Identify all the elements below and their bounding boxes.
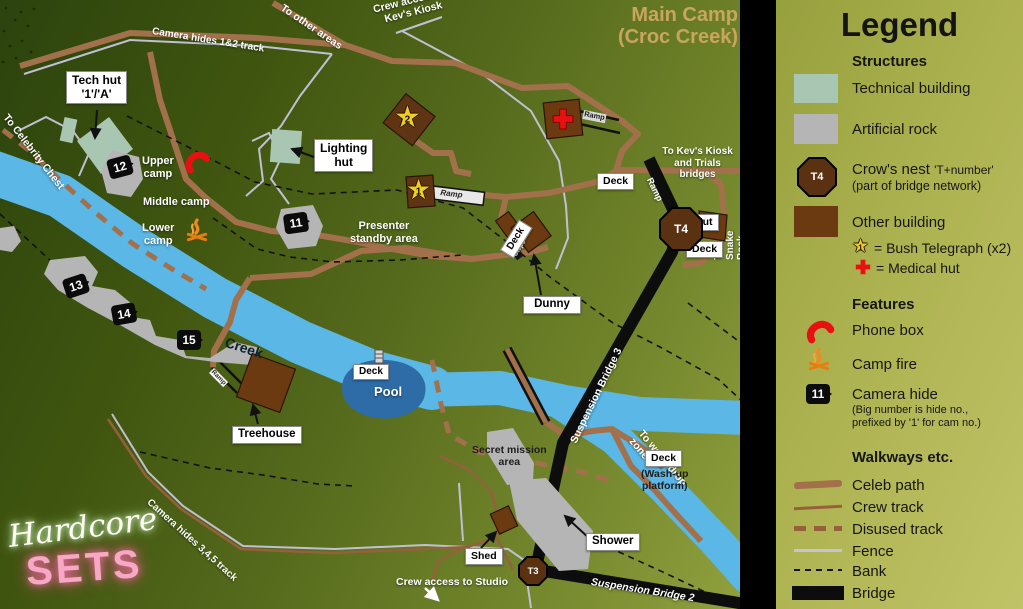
bush-telegraph-number: 1 <box>858 244 862 253</box>
dunny-arrow <box>534 255 541 295</box>
studio-access-arrow <box>425 588 438 600</box>
camera-hide-14: 14 <box>110 302 137 326</box>
legend-crows-nest-icon: T4 <box>797 157 837 197</box>
camera-hide-11: 11 <box>283 211 310 234</box>
legend-crows-nest-note: (part of bridge network) <box>852 179 981 193</box>
annotation-lower-camp: Lower camp <box>142 222 174 247</box>
disused-track-swatch <box>794 526 842 531</box>
annotation-presenter-standby: Presenter standby area <box>350 220 418 245</box>
camera-hide-number: 11 <box>289 215 304 231</box>
annotation-washup-platform: (Wash-up platform) <box>641 468 688 492</box>
annotation-middle-camp: Middle camp <box>143 196 210 209</box>
legend-camera-hide-icon: 11 <box>806 384 830 404</box>
legend-features-heading: Features <box>852 296 915 313</box>
camera-hide-15: 15 <box>177 330 201 350</box>
annotation-upper-camp: Upper camp <box>142 155 174 180</box>
legend-bank: Bank <box>852 563 886 580</box>
label-shower: Shower <box>586 533 640 551</box>
legend-celeb-path: Celeb path <box>852 477 925 494</box>
legend-artificial-rock: Artificial rock <box>852 121 937 138</box>
camera-hide-icon: 14 <box>110 302 137 326</box>
legend-medical-hut: = Medical hut <box>876 260 960 276</box>
other-building-swatch <box>794 206 838 237</box>
crows-nest-suffix: 'T+number' <box>934 163 994 177</box>
legend-crows-nest: Crow's nest 'T+number' <box>852 161 994 178</box>
legend-camp-fire: Camp fire <box>852 356 917 373</box>
legend-panel: Legend Structures Technical building Art… <box>776 0 1023 609</box>
annotation-secret-mission: Secret mission area <box>472 444 547 468</box>
bush-telegraph-number: 1 <box>416 187 422 198</box>
crows-nest-t3: T3 <box>518 556 548 586</box>
map-title-line1: Main Camp <box>598 4 738 26</box>
crew-track-swatch <box>794 505 842 511</box>
crows-nest-t4: T4 <box>659 207 703 251</box>
map-title: Main Camp (Croc Creek) <box>598 4 738 48</box>
legend-camera-hide: Camera hide <box>852 386 938 403</box>
logo-block: SETS <box>25 542 144 595</box>
shower-rock <box>509 478 593 571</box>
map-panel: Main Camp (Croc Creek) Camera hides 1&2 … <box>0 0 740 609</box>
technical-building-swatch <box>794 74 838 103</box>
stipple-dots <box>2 7 36 64</box>
annotation-pool: Pool <box>374 385 402 400</box>
label-dunny: Dunny <box>523 296 581 314</box>
legend-medical-icon <box>855 259 871 280</box>
legend-bridge: Bridge <box>852 585 895 602</box>
annotation-to-kevs-kiosk: To Kev's Kiosk and Trials bridges <box>655 146 740 181</box>
camera-hide-number: 11 <box>812 387 825 401</box>
artificial-rock-swatch <box>794 114 838 144</box>
treehouse-arrow <box>253 405 258 424</box>
legend-fire-icon <box>807 347 831 378</box>
label-shed: Shed <box>465 548 503 565</box>
crows-nest-label: Crow's nest <box>852 161 930 178</box>
camera-hide-icon: 15 <box>177 330 201 350</box>
crew-tracks <box>108 419 513 580</box>
bush-telegraph-number: 2 <box>405 115 411 126</box>
lighting-hut-building <box>270 129 302 164</box>
label-deck-north: Deck <box>597 173 634 190</box>
celeb-path-swatch <box>794 480 842 490</box>
legend-phone-icon <box>799 311 839 351</box>
legend-walkways-heading: Walkways etc. <box>852 449 953 466</box>
label-deck-pool: Deck <box>353 364 389 380</box>
legend-bush-telegraph-star: ★ 1 <box>852 237 869 256</box>
bush-telegraph-1-star: ★ 1 <box>406 176 431 204</box>
label-lighting-hut: Lighting hut <box>314 139 373 172</box>
legend-disused-track: Disused track <box>852 521 943 538</box>
legend-crew-track: Crew track <box>852 499 924 516</box>
label-tech-hut: Tech hut '1'/'A' <box>66 71 127 104</box>
shed-building <box>490 506 517 534</box>
legend-structures-heading: Structures <box>852 53 927 70</box>
bush-telegraph-2-star: ★ 2 <box>394 103 421 133</box>
annotation-crew-access-studio: Crew access to Studio <box>396 576 508 588</box>
camera-hide-number: 12 <box>112 159 129 176</box>
legend-bush-telegraph: = Bush Telegraph (x2) <box>874 240 1011 256</box>
map-title-line2: (Croc Creek) <box>598 26 738 48</box>
legend-technical-building: Technical building <box>852 80 970 97</box>
camera-hide-number: 13 <box>67 277 84 294</box>
fence-swatch <box>794 549 842 552</box>
crows-nest-icon: T3 <box>520 558 546 584</box>
pool-deck-ladder <box>375 350 383 363</box>
tech-hut-annex <box>60 117 78 143</box>
bridge-swatch <box>792 586 844 600</box>
crows-nest-icon: T4 <box>661 209 701 249</box>
camera-hide-number: 14 <box>116 306 132 322</box>
legend-other-building: Other building <box>852 214 945 231</box>
crows-nest-icon-text: T4 <box>799 159 835 195</box>
camera-hide-number: 15 <box>182 333 195 347</box>
label-deck-washup: Deck <box>645 450 682 467</box>
legend-fence: Fence <box>852 543 894 560</box>
camp-map-page: Main Camp (Croc Creek) Camera hides 1&2 … <box>0 0 1023 609</box>
bank-swatch <box>794 569 842 571</box>
legend-phone-box: Phone box <box>852 322 924 339</box>
legend-title: Legend <box>776 6 1023 44</box>
camera-hide-icon: 11 <box>283 211 310 234</box>
legend-camera-hide-note: (Big number is hide no., prefixed by '1'… <box>852 404 981 430</box>
label-treehouse: Treehouse <box>232 426 302 444</box>
